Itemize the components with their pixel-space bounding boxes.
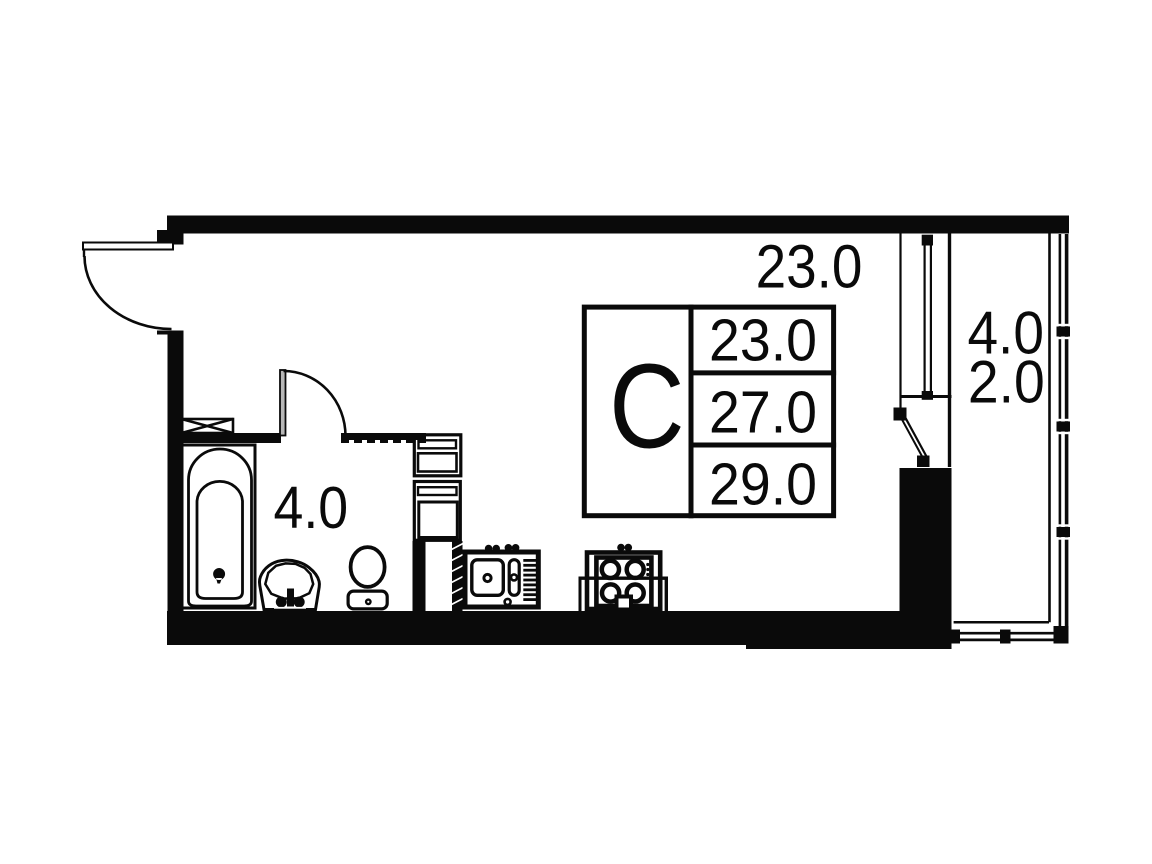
svg-text:23.0: 23.0 [756, 233, 863, 301]
svg-text:27.0: 27.0 [709, 380, 817, 446]
svg-text:23.0: 23.0 [709, 308, 817, 374]
svg-text:4.0: 4.0 [273, 475, 348, 541]
svg-text:С: С [609, 339, 685, 473]
svg-text:29.0: 29.0 [709, 452, 817, 518]
svg-text:2.0: 2.0 [968, 349, 1045, 416]
